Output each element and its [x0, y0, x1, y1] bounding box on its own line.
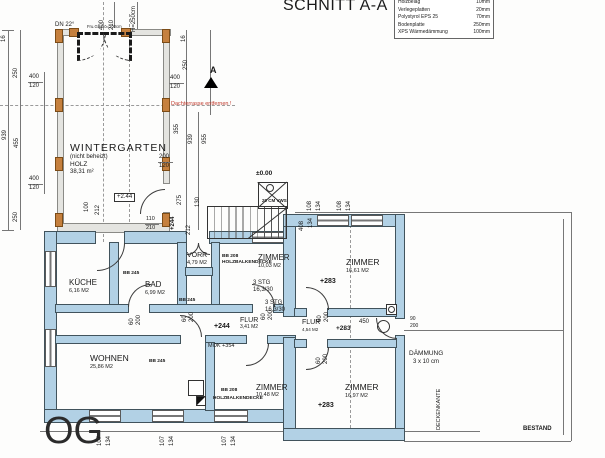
wall: [396, 336, 404, 440]
insulation-note: 3 x 10 cm: [413, 359, 439, 366]
level-label: +283: [320, 278, 336, 286]
dimension-line: [198, 112, 199, 230]
wall: [206, 336, 246, 343]
legend-material: Verlegeplatten: [398, 7, 430, 14]
legend-material: XPS Wärmedämmung: [398, 29, 448, 36]
dimension: 134: [346, 201, 352, 211]
door-dimension: 60: [129, 318, 135, 325]
dimension: 107: [222, 436, 228, 446]
room-area: 4,54 M2: [302, 327, 318, 332]
timber-post: [163, 30, 169, 42]
beam-label: BB 208: [222, 254, 238, 260]
door-swing: [306, 287, 329, 310]
dimension: 108: [337, 201, 343, 211]
door-dimension: 200: [324, 312, 330, 322]
drawing-title: SCHNITT A-A: [283, 0, 388, 15]
bestand-wall-line: [404, 330, 564, 331]
wall: [58, 30, 63, 225]
dimension: 939: [2, 130, 8, 140]
wall: [125, 232, 186, 243]
dimension: 955: [202, 134, 208, 144]
dimension: 130: [195, 197, 201, 207]
beam-label: BB 245: [179, 298, 195, 304]
dimension: 212: [186, 225, 192, 235]
dimension: H=250cm: [131, 6, 137, 32]
room-name: KÜCHE: [69, 278, 97, 287]
window: [153, 411, 183, 421]
bestand-label: BESTAND: [523, 426, 552, 433]
legend-thickness: 250mm: [473, 22, 490, 29]
wall: [56, 305, 128, 312]
ceiling-edge-label: DECKENKANTE: [437, 389, 443, 430]
room-area: 6,16 M2: [69, 288, 89, 294]
room-area: 3,41 M2: [240, 325, 258, 331]
level-label: +244: [214, 323, 230, 331]
dimension: 134: [106, 436, 112, 446]
timber-post: [56, 158, 62, 170]
dimension: 107: [97, 436, 103, 446]
beam-label: BB 245: [123, 271, 139, 277]
timber-post: [56, 99, 62, 111]
bestand-outline-bottom: [404, 441, 571, 442]
dimension: 120: [159, 163, 169, 170]
dimension: 107: [160, 436, 166, 446]
wall: [295, 340, 306, 347]
fixture-symbol: [377, 320, 390, 333]
materials-legend: Holzbelag10mm Verlegeplatten20mm Polysty…: [394, 0, 494, 39]
dimension: 210: [109, 20, 115, 30]
timber-post: [56, 214, 62, 226]
slope-label: DN 22°: [55, 22, 74, 29]
legend-row: Polystyrol EPS 2570mm: [398, 14, 490, 21]
dimension: 400: [29, 74, 39, 81]
dimension-tick: [2, 230, 14, 231]
room-note: (nicht beheizt): [70, 154, 108, 161]
dimension: 408: [299, 221, 305, 231]
floor-plan: SCHNITT A-A Holzbelag10mm Verlegeplatten…: [0, 0, 605, 458]
revision-note: Dachterrasse entfernen !: [171, 101, 232, 107]
door-swing: [246, 343, 269, 366]
dimension: 250: [13, 68, 19, 78]
dimension: 275: [177, 195, 183, 205]
timber-post: [163, 99, 169, 111]
window: [46, 330, 55, 366]
legend-thickness: 20mm: [476, 7, 490, 14]
legend-row: Holzbelag10mm: [398, 0, 490, 6]
window: [318, 216, 348, 225]
legend-material: Holzbelag: [398, 0, 420, 6]
stair-note: 3 STG: [253, 280, 270, 287]
dimension: 400: [99, 20, 105, 30]
bestand-outline-top: [295, 212, 572, 213]
level-point: [266, 184, 274, 192]
door-dimension: 200: [136, 315, 142, 325]
fixture-symbol: [388, 306, 395, 313]
dimension-line: [137, 2, 138, 30]
floor-label: OG: [44, 410, 103, 454]
dimension: 355: [174, 124, 180, 134]
dimension-line: [8, 30, 9, 230]
window: [352, 216, 382, 225]
room-name: BAD: [145, 280, 161, 289]
staircase: [208, 207, 286, 238]
dimension: 200: [159, 154, 169, 161]
dimension: 120: [170, 84, 180, 91]
door-swing: [77, 32, 106, 61]
level-label: +283: [318, 402, 334, 410]
beam-label: BB 208: [221, 388, 237, 394]
dimension-line: [40, 431, 480, 432]
legend-thickness: 100mm: [473, 29, 490, 36]
level-label: +244: [170, 216, 176, 230]
dimension: 250: [183, 60, 189, 70]
legend-row: Verlegeplatten20mm: [398, 7, 490, 14]
legend-thickness: 70mm: [476, 14, 490, 21]
room-name: ZIMMER: [346, 258, 380, 268]
legend-row: Bodenplatte250mm: [398, 22, 490, 29]
room-area: 6,99 M2: [145, 290, 165, 296]
room-name: VORR: [187, 252, 207, 260]
insulation-note: DÄMMUNG: [409, 350, 443, 357]
timber-post: [56, 30, 62, 42]
door-dimension: 60: [261, 313, 267, 320]
timber-post: [163, 214, 169, 226]
legend-material: Polystyrol EPS 25: [398, 14, 438, 21]
room-area: 38,31 m²: [70, 169, 94, 176]
dimension: 939: [188, 134, 194, 144]
door-swing: [97, 243, 125, 271]
window: [46, 252, 55, 286]
room-area: 25,86 M2: [90, 364, 113, 370]
section-marker-icon: [204, 77, 218, 88]
dimension: 108: [307, 201, 313, 211]
legend-row: XPS Wärmedämmung100mm: [398, 29, 490, 36]
dimension: 120: [29, 185, 39, 192]
level-label: +283: [336, 325, 351, 332]
dimension: 16: [181, 35, 187, 42]
dimension: 134: [231, 436, 237, 446]
door-dimension: 200: [410, 324, 418, 330]
wall: [284, 429, 404, 440]
legend-material: Bodenplatte: [398, 22, 425, 29]
dimension: 100: [84, 202, 90, 212]
room-name: WOHNEN: [90, 354, 129, 364]
window: [215, 411, 247, 421]
room-name: ZIMMER: [256, 383, 288, 392]
room-material: HOLZ: [70, 161, 87, 168]
door-dimension: 200: [189, 312, 195, 322]
dimension-line: [20, 30, 21, 230]
room-name: ZIMMER: [258, 253, 290, 262]
room-area: 4,79 M2: [187, 260, 207, 266]
dimension: 134: [169, 436, 175, 446]
wall: [186, 268, 212, 275]
dimension: 110: [146, 216, 155, 222]
dimension: 134: [316, 201, 322, 211]
beam-label: BB 245: [149, 359, 165, 365]
door-swing: [103, 32, 132, 61]
door-dimension: 60: [317, 315, 323, 322]
room-name: WINTERGARTEN: [70, 142, 167, 154]
level-label: +2.44: [114, 193, 135, 202]
dimension: 400: [29, 176, 39, 183]
dimension: 210: [146, 225, 155, 231]
wall: [212, 243, 219, 305]
dimension: 120: [29, 83, 39, 90]
wall: [328, 340, 396, 347]
room-area: 10,03 M2: [258, 263, 281, 269]
bestand-outline-right: [571, 212, 572, 441]
room-area: 16,97 M2: [345, 393, 368, 399]
dimension-line: [44, 72, 45, 194]
dimension: 400: [170, 75, 180, 82]
door-dimension: 90: [410, 317, 416, 323]
dimension: 134: [308, 218, 314, 228]
bestand-wall-line: [563, 219, 564, 435]
dimension: 250: [13, 212, 19, 222]
stair-note: 3 STG: [265, 300, 282, 307]
door-dimension: 60: [316, 357, 322, 364]
dimension-tick: [2, 30, 14, 31]
wall: [150, 305, 252, 312]
wall: [396, 215, 404, 318]
wall: [56, 336, 180, 343]
door-swing: [140, 189, 165, 214]
vws-note: 20 CM VWS: [262, 198, 287, 203]
section-marker-label: A: [210, 65, 217, 75]
dimension: 212: [95, 205, 101, 215]
chimney: [188, 380, 204, 396]
door-dimension: 200: [268, 310, 274, 320]
wall: [295, 309, 306, 316]
dimension: 450: [359, 319, 369, 326]
room-area: 16,61 M2: [346, 268, 369, 274]
dimension: 455: [14, 138, 20, 148]
stair-note: 16,3/30: [253, 287, 273, 294]
level-label: MOK +354: [208, 343, 234, 349]
level-label: ±0.00: [256, 170, 272, 177]
ceiling-label: HOLZBALKENDECKE: [213, 396, 263, 402]
dimension: 16: [1, 35, 7, 42]
door-dimension: 200: [323, 354, 329, 364]
room-name: ZIMMER: [345, 383, 379, 393]
legend-thickness: 10mm: [476, 0, 490, 6]
door-dimension: 60: [182, 315, 188, 322]
shaft-symbol: [196, 396, 206, 406]
